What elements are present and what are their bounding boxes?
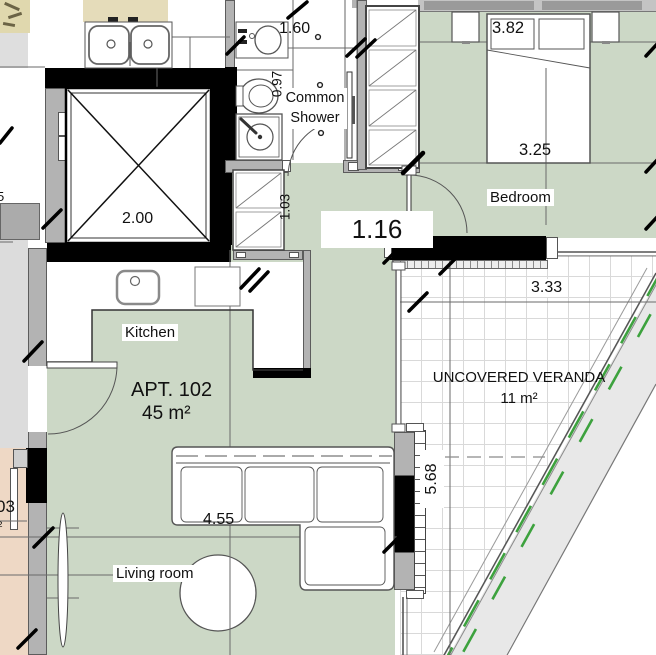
room-living-label: Living room <box>113 565 197 582</box>
room-shower-label: Common Shower <box>283 88 347 129</box>
room-bedroom-label: Bedroom <box>487 189 554 206</box>
edge-partial-neighbor-dim: 03 <box>0 497 15 517</box>
apartment-area: 45 m² <box>142 403 191 425</box>
wardrobe <box>366 6 419 168</box>
nightstand <box>452 12 479 44</box>
dim-living-width: 4.55 <box>203 511 234 529</box>
floor-plan: 1.60 0.97 Common Shower 2.00 3.82 3.25 B… <box>0 0 656 655</box>
dim-shower-width: 1.60 <box>279 20 310 38</box>
nightstand <box>592 12 619 44</box>
dim-hall-depth: 1.03 <box>275 183 295 231</box>
dim-bedroom-width: 3.82 <box>492 19 524 38</box>
kitchen-sink <box>117 271 159 304</box>
door-swing-arc <box>48 365 117 434</box>
planter-strip <box>434 268 656 655</box>
wall-column <box>58 513 68 647</box>
edge-partial-neighbor-sup: ² <box>0 518 2 533</box>
dim-bed-length: 3.25 <box>519 141 551 160</box>
sofa-cushion <box>245 467 314 522</box>
shower-tray <box>236 114 282 160</box>
room-veranda-label: UNCOVERED VERANDA <box>404 369 634 386</box>
neighbor-double-sink <box>85 22 172 68</box>
room-kitchen-label: Kitchen <box>122 324 178 341</box>
sofa-chaise-cushion <box>305 527 385 585</box>
entrance-door <box>47 362 117 434</box>
dim-veranda-width: 3.33 <box>528 279 565 297</box>
door-handle <box>352 96 355 124</box>
veranda-area: 11 m² <box>404 390 634 407</box>
dim-elevator: 2.00 <box>122 210 153 228</box>
kitchen-appliance <box>195 267 240 306</box>
sofa-cushion <box>317 467 383 522</box>
pillow <box>539 19 584 49</box>
dim-hall-width: 1.16 <box>321 211 433 248</box>
door-leaf <box>47 362 117 368</box>
apartment-name: APT. 102 <box>131 379 212 402</box>
dim-veranda-length: 5.68 <box>420 450 444 508</box>
edge-partial-left-dim: 5 <box>0 189 4 204</box>
